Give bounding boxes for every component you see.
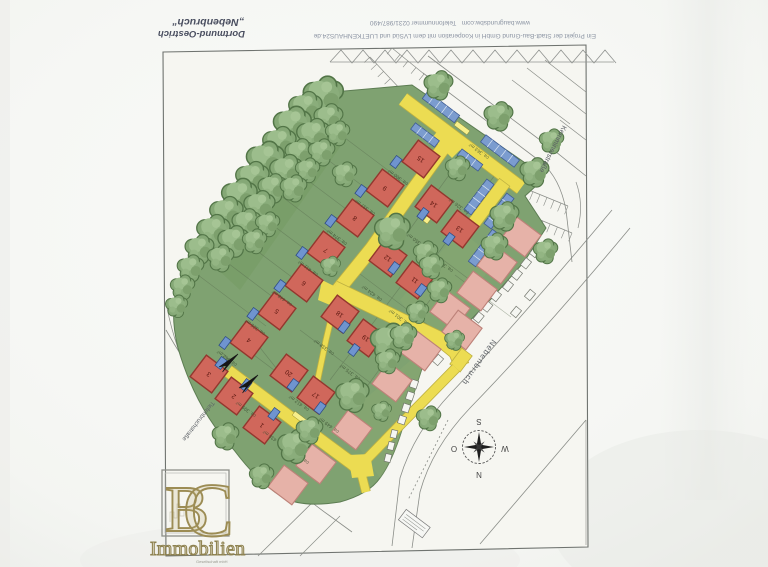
svg-text:Gesellschaft mbH: Gesellschaft mbH bbox=[196, 559, 228, 564]
svg-text:„Nebenbruch“: „Nebenbruch“ bbox=[171, 16, 245, 28]
svg-text:W: W bbox=[501, 444, 509, 453]
svg-text:O: O bbox=[451, 444, 457, 453]
svg-text:www.baugrundsbw.com Telefonn: www.baugrundsbw.com Telefonnummer 0231/9… bbox=[370, 19, 531, 26]
svg-text:N: N bbox=[476, 470, 482, 479]
svg-text:Dortmund-Oestrich: Dortmund-Oestrich bbox=[158, 28, 245, 39]
svg-text:Ein Projekt der Stadt-Bau-Grun: Ein Projekt der Stadt-Bau-Grund GmbH in … bbox=[313, 32, 596, 39]
svg-text:S: S bbox=[476, 417, 481, 426]
svg-text:Immobilien: Immobilien bbox=[150, 538, 245, 560]
